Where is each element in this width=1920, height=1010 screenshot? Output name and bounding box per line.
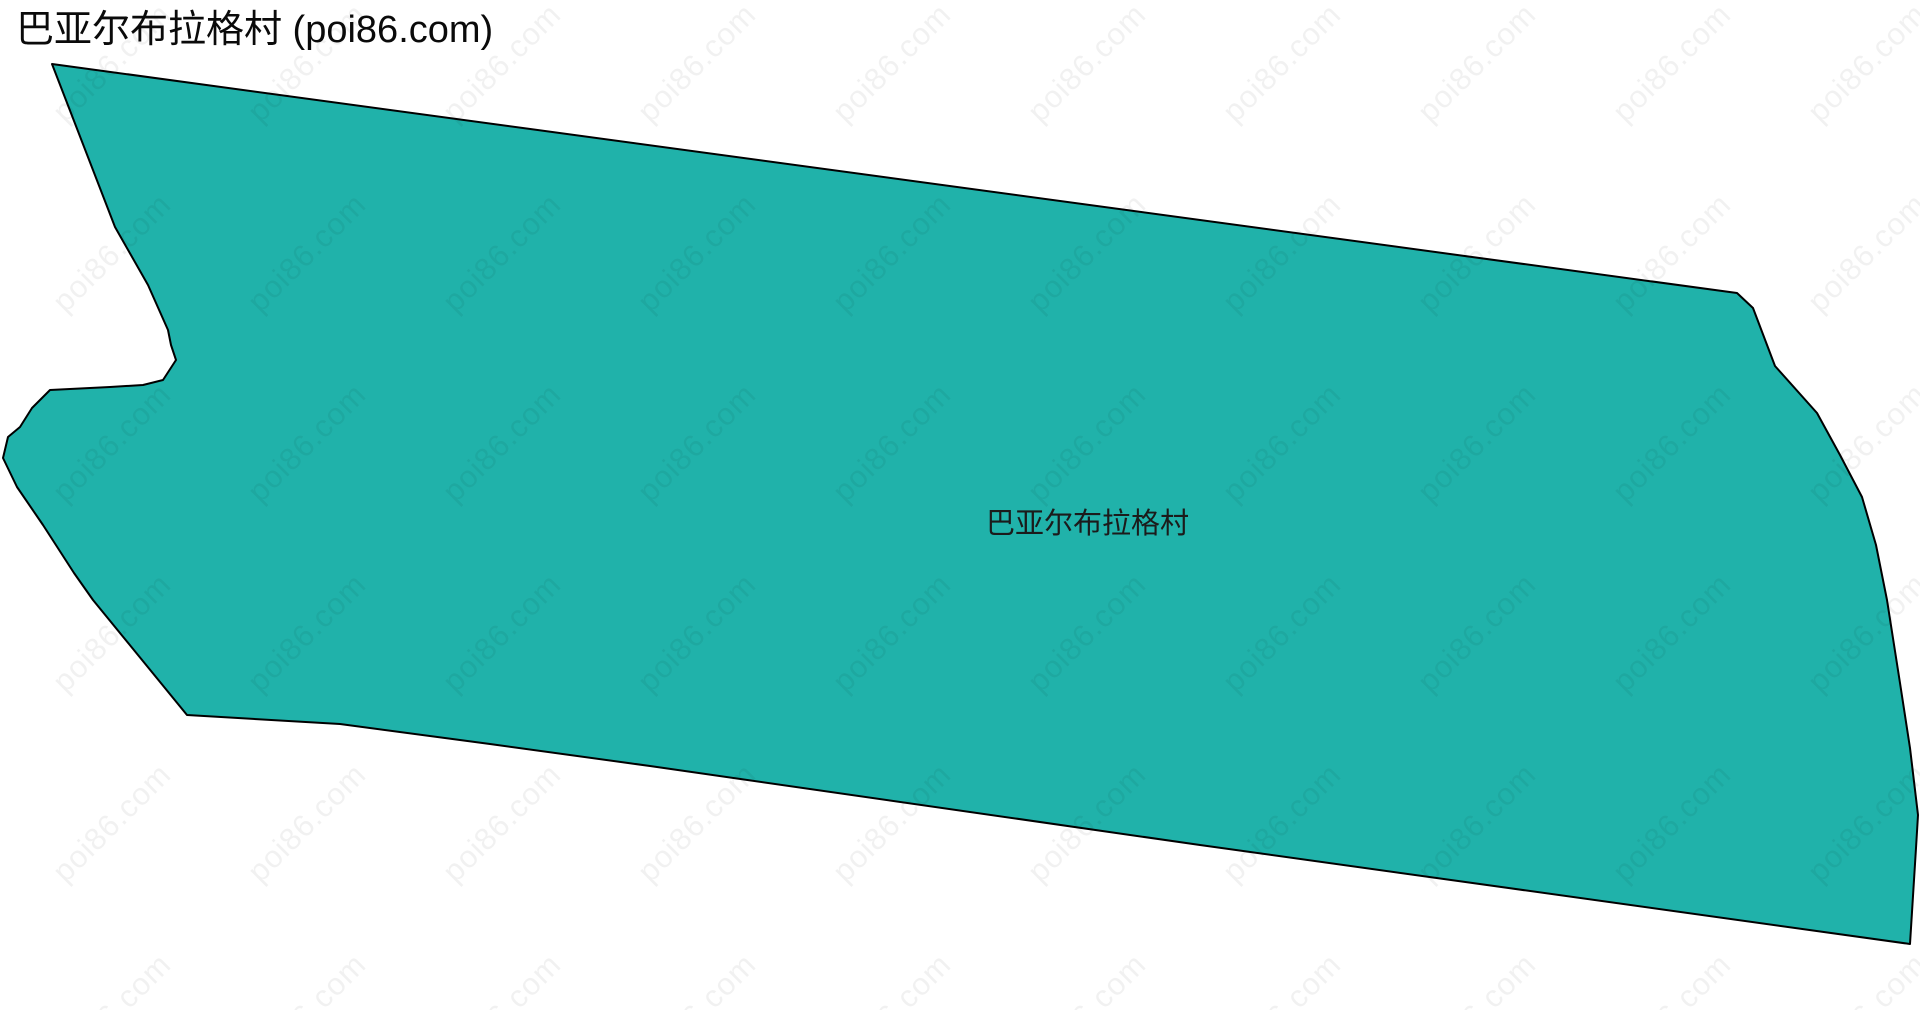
map-canvas: poi86.compoi86.compoi86.compoi86.compoi8… (0, 0, 1920, 1010)
region-map (0, 0, 1920, 1010)
page-title: 巴亚尔布拉格村 (poi86.com) (16, 9, 493, 53)
village-boundary-polygon (3, 64, 1918, 944)
region-label: 巴亚尔布拉格村 (986, 509, 1189, 541)
